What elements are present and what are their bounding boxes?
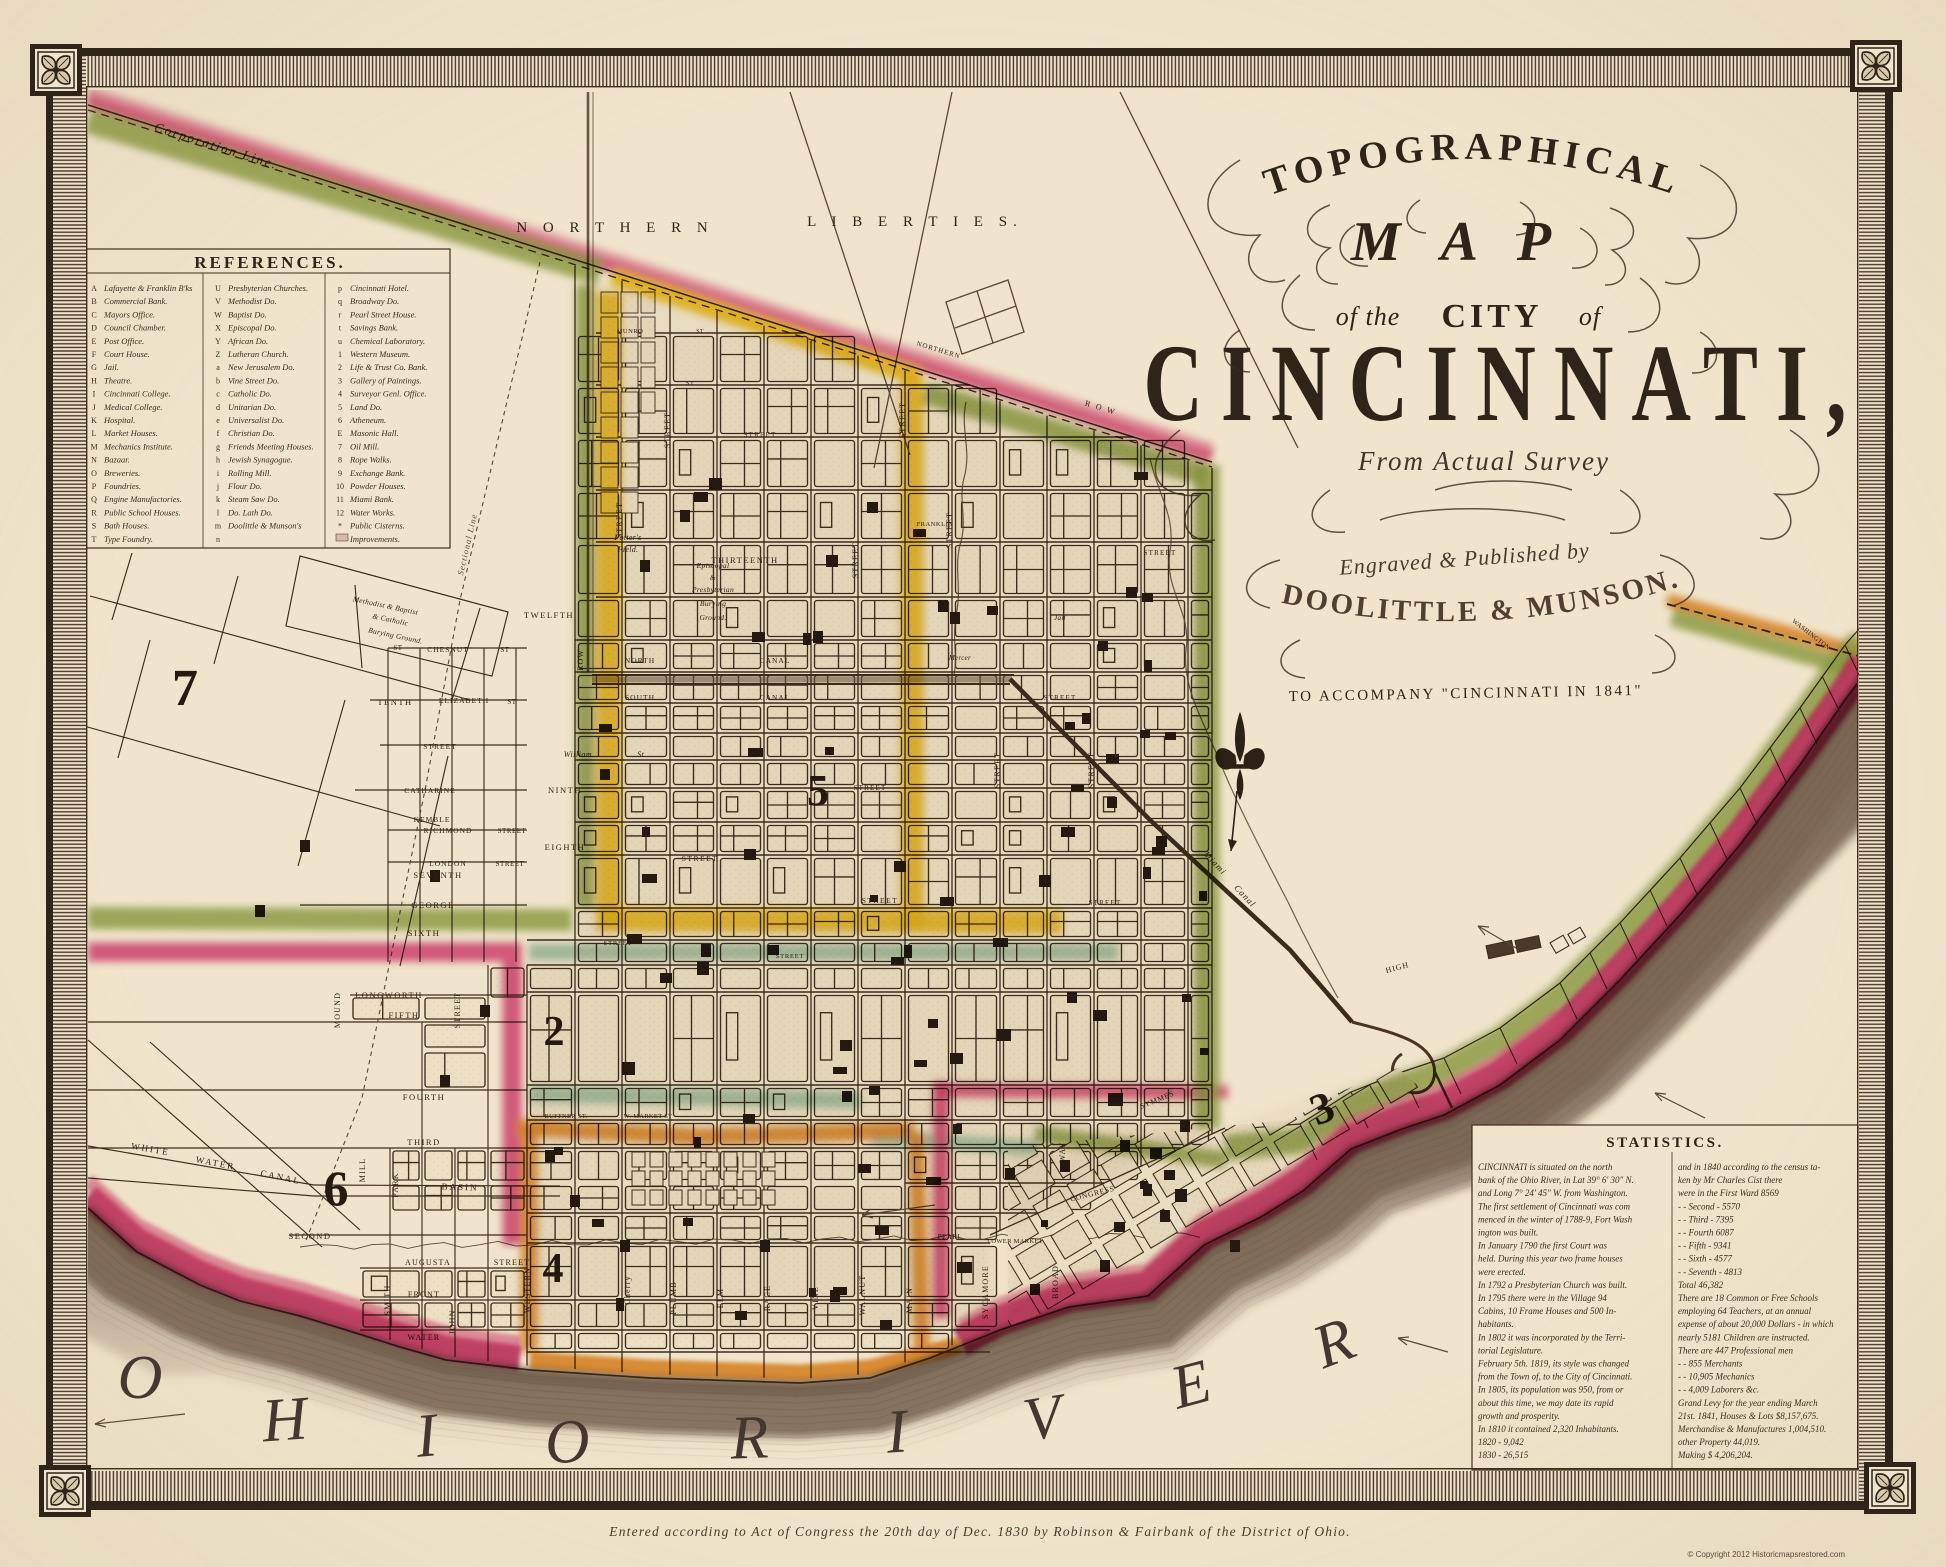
svg-text:Entered according to Act of Co: Entered according to Act of Congress the… bbox=[608, 1524, 1350, 1539]
svg-text:© Copyright 2012 Historicmapsr: © Copyright 2012 Historicmapsrestored.co… bbox=[1687, 1550, 1845, 1559]
